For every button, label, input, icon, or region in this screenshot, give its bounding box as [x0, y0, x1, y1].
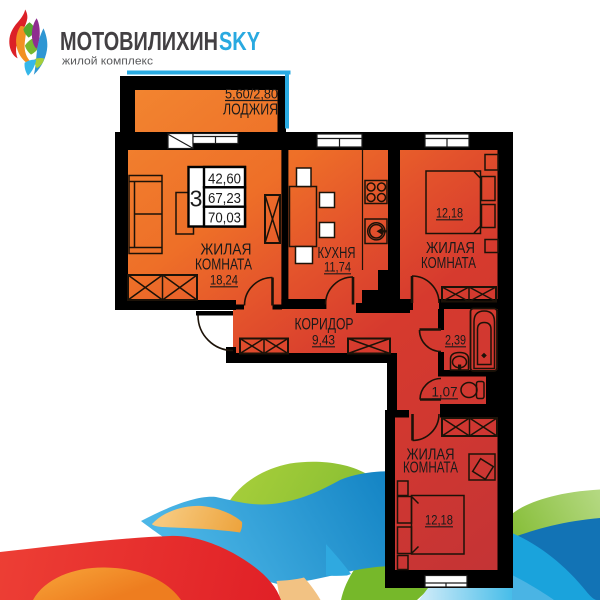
svg-text:1,07: 1,07	[432, 384, 458, 400]
svg-text:9,43: 9,43	[312, 332, 335, 348]
svg-text:SKY: SKY	[219, 26, 260, 56]
svg-text:КОМНАТА: КОМНАТА	[421, 255, 476, 272]
svg-text:МОТОВИЛИХИН: МОТОВИЛИХИН	[60, 26, 218, 56]
svg-text:2,39: 2,39	[445, 332, 466, 348]
svg-text:жилой комплекс: жилой комплекс	[62, 56, 154, 68]
svg-text:18,24: 18,24	[210, 272, 238, 288]
svg-text:12,18: 12,18	[436, 205, 463, 221]
svg-text:12,18: 12,18	[425, 512, 453, 528]
svg-text:42,60: 42,60	[208, 172, 241, 188]
svg-text:3: 3	[190, 186, 203, 212]
svg-text:70,03: 70,03	[208, 211, 241, 227]
svg-text:ЛОДЖИЯ: ЛОДЖИЯ	[223, 102, 278, 119]
svg-text:5,60/2,80: 5,60/2,80	[225, 86, 278, 102]
svg-text:67,23: 67,23	[208, 191, 241, 207]
svg-text:11,74: 11,74	[324, 259, 351, 275]
svg-text:КОМНАТА: КОМНАТА	[403, 460, 458, 477]
